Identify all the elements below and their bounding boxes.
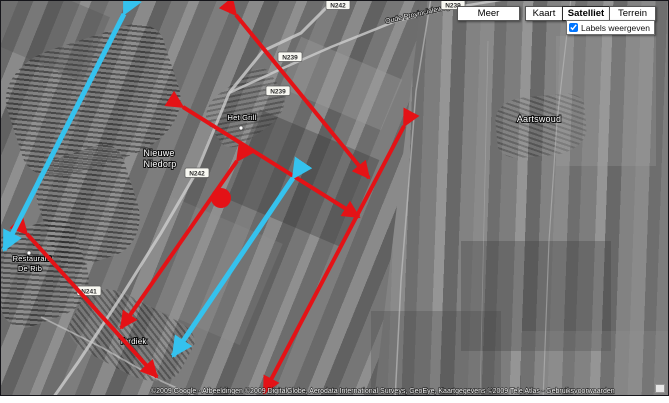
labels-toggle-panel: Labels weergeven	[566, 20, 655, 35]
map-overlay: NieuweNiedorpHet GrillAartswoudRestauran…	[1, 1, 668, 395]
page-bottom-margin	[0, 396, 669, 403]
annotation-arrow-cyan	[173, 178, 293, 356]
map-attribution: ©2009 Google - Afbeeldingen ©2009 Digita…	[151, 387, 615, 395]
map-place-label: Het Grill	[228, 113, 257, 122]
road-line	[543, 1, 571, 395]
map-viewport[interactable]: NieuweNiedorpHet GrillAartswoudRestauran…	[0, 0, 669, 396]
labels-checkbox[interactable]	[569, 23, 578, 32]
svg-text:N242: N242	[189, 171, 205, 178]
map-place-label: De Rib	[18, 264, 42, 273]
svg-text:N239: N239	[282, 55, 298, 62]
road-shield: N242	[326, 1, 350, 10]
svg-text:N239: N239	[270, 89, 286, 96]
map-type-button-meer[interactable]: Meer	[457, 6, 520, 21]
map-type-button-terrein[interactable]: Terrein	[609, 6, 656, 21]
annotation-arrow-red	[121, 161, 237, 328]
road-line	[480, 41, 488, 395]
road-shield: N239	[266, 86, 290, 96]
map-place-label: Nieuwe	[143, 148, 174, 158]
road-line	[41, 317, 206, 395]
map-place-label: Niedorp	[144, 159, 177, 169]
road-shield: N242	[185, 168, 209, 178]
map-type-button-satelliet[interactable]: Satelliet	[562, 6, 610, 21]
road-shield: N239	[278, 52, 302, 62]
map-place-label: Aartswoud	[517, 114, 561, 124]
annotation-arrow-cyan	[4, 14, 124, 250]
map-type-button-kaart[interactable]: Kaart	[525, 6, 563, 21]
annotation-arrow-red	[264, 126, 404, 393]
map-corner-widget[interactable]	[655, 384, 665, 393]
annotation-dot	[211, 188, 231, 208]
google-maps-window: NieuweNiedorpHet GrillAartswoudRestauran…	[0, 0, 669, 403]
poi-dot[interactable]	[239, 126, 243, 130]
labels-checkbox-label: Labels weergeven	[581, 23, 650, 33]
svg-text:N242: N242	[330, 3, 346, 10]
road-line	[395, 1, 431, 395]
